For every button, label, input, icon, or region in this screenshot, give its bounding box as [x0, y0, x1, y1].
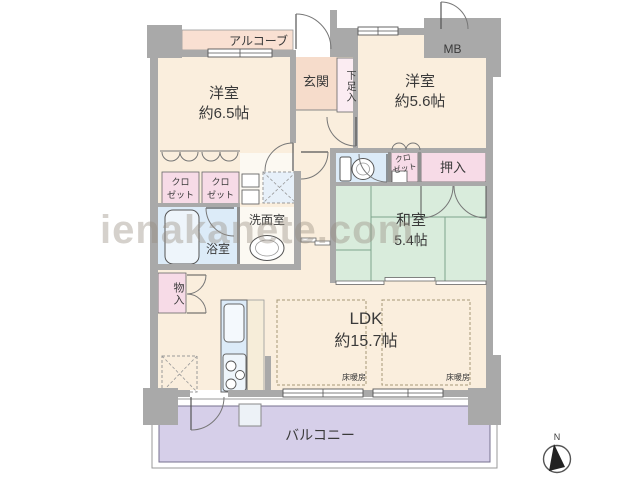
western-room-1-size: 約6.5帖 [174, 104, 274, 124]
window-top-east [358, 27, 398, 35]
ldk-size: 約15.7帖 [316, 331, 416, 353]
bathtub [165, 210, 199, 264]
window-balcony-west [283, 389, 363, 397]
toilet-fixture [340, 157, 374, 181]
oshiire-label: 押入 [421, 159, 485, 177]
washer-space [263, 172, 296, 203]
closet-b-line1: クロ [202, 176, 239, 189]
bathroom-label: 浴室 [196, 241, 240, 257]
western-room-2-label: 洋室 約5.6帖 [370, 72, 470, 113]
floor-heating-label-west: 床暖房 [318, 373, 366, 384]
floor-heating-label-east: 床暖房 [422, 373, 470, 384]
closet-b-line2: ゼット [202, 189, 239, 202]
entrance-door [296, 14, 331, 49]
window-balcony-east [373, 389, 443, 397]
washbasin [250, 236, 284, 261]
kitchen-counter [247, 300, 264, 392]
compass [544, 444, 571, 473]
washroom-label: 洗面室 [238, 212, 296, 228]
western-room-1-label: 洋室 約6.5帖 [174, 84, 274, 125]
western-room-1-name: 洋室 [174, 84, 274, 104]
western-room-2-name: 洋室 [370, 72, 470, 92]
japanese-room-label: 和室 5.4帖 [361, 211, 461, 250]
kitchen-sink [224, 304, 244, 342]
kitchen-unit [221, 300, 264, 392]
meter-box-label: MB [437, 41, 468, 57]
closet-a-line1: クロ [162, 176, 199, 189]
closet-b-label: クロ ゼット [202, 176, 239, 201]
ldk-name: LDK [316, 308, 416, 331]
pillar-bottom-left [143, 388, 178, 425]
window-top-west [208, 49, 272, 57]
compass-north-label: N [544, 431, 570, 443]
entrance-label: 玄関 [294, 73, 338, 91]
western-room-2-size: 約5.6帖 [370, 92, 470, 112]
closet-a-line2: ゼット [162, 189, 199, 202]
shoe-cabinet-label: 下足入 [338, 62, 356, 110]
pillar-bottom-right [468, 388, 501, 425]
balcony-label: バルコニー [270, 426, 370, 445]
storage-label: 物入 [159, 277, 185, 311]
japanese-room-name: 和室 [361, 211, 461, 231]
floor-plan: アルコーブ 洋室 約6.5帖 玄関 下足入 洋室 約5.6帖 MB クロ ゼット… [0, 0, 640, 480]
japanese-room-size: 5.4帖 [361, 231, 461, 250]
alcove-label: アルコーブ [196, 33, 288, 49]
closet-a-label: クロ ゼット [162, 176, 199, 201]
ldk-label: LDK 約15.7帖 [316, 308, 416, 353]
floor-plan-drawing [0, 0, 640, 480]
balcony-equipment-box [239, 404, 261, 426]
